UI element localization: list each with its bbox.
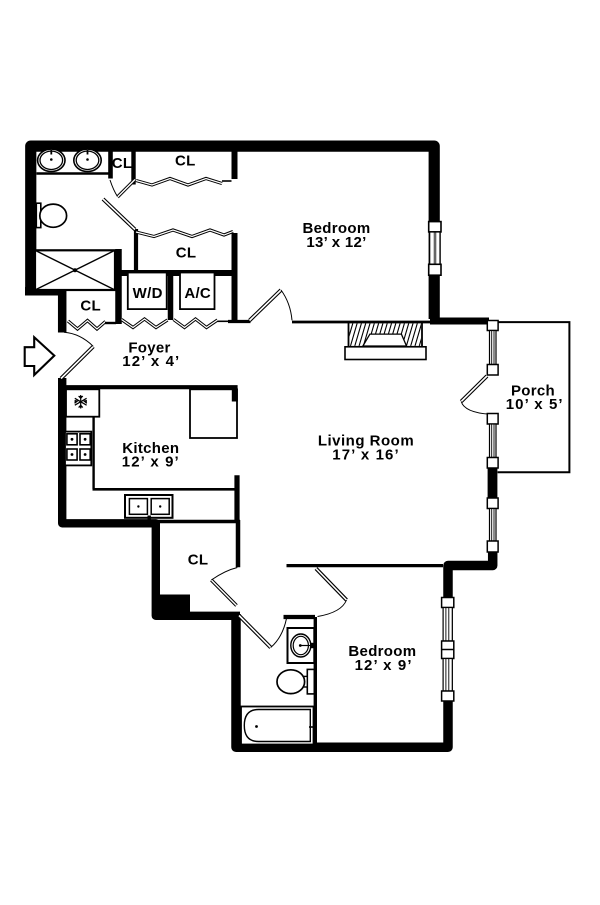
- svg-text:12’ x 9’: 12’ x 9’: [122, 454, 180, 471]
- svg-text:CL: CL: [80, 297, 101, 314]
- svg-text:12’ x 9’: 12’ x 9’: [355, 657, 413, 674]
- svg-text:CL: CL: [188, 552, 209, 569]
- svg-text:W/D: W/D: [133, 285, 163, 302]
- svg-text:CL: CL: [176, 244, 197, 261]
- svg-text:CL: CL: [112, 155, 133, 172]
- svg-text:12’ x 4’: 12’ x 4’: [122, 353, 180, 370]
- svg-text:CL: CL: [175, 152, 196, 169]
- svg-text:A/C: A/C: [184, 285, 211, 302]
- svg-text:10’ x 5’: 10’ x 5’: [506, 396, 564, 413]
- svg-text:13’ x 12’: 13’ x 12’: [306, 234, 366, 251]
- svg-text:17’ x 16’: 17’ x 16’: [332, 447, 399, 464]
